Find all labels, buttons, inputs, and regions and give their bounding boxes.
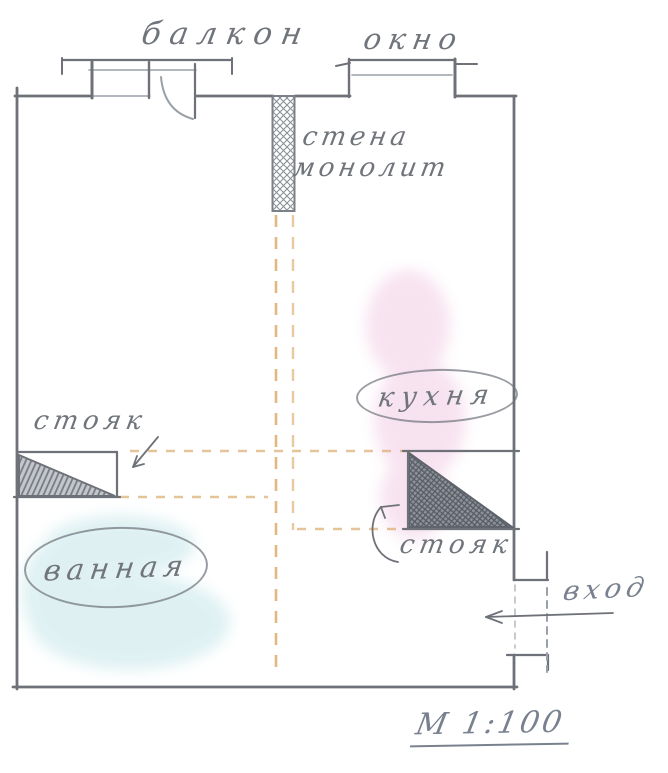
monolith-wall-label: стена монолит (295, 122, 458, 184)
riser-right (403, 451, 519, 529)
monolith-wall-hatch (273, 96, 295, 211)
riser-right-label: стояк (397, 530, 515, 560)
balcony-door (62, 58, 232, 119)
entrance-label: вход (560, 572, 651, 607)
scale-label: М 1:100 (410, 705, 576, 748)
balcony-label: балкон (139, 16, 314, 52)
floor-plan-sketch: балкон окно стена монолит кухня стояк ва… (0, 0, 668, 773)
window (336, 59, 477, 97)
window-label: окно (361, 22, 466, 56)
door-swing-arc (161, 77, 193, 119)
monolith-wall-label-line1: стена (300, 122, 457, 153)
entrance-arrow (486, 611, 613, 623)
bathroom-label: ванная (41, 548, 191, 587)
riser-left (14, 452, 120, 497)
kitchen-label: кухня (376, 379, 498, 413)
monolith-wall-label-line2: монолит (291, 153, 452, 184)
riser-left-label: стояк (31, 406, 149, 436)
floor-plan-drawing (0, 0, 668, 773)
